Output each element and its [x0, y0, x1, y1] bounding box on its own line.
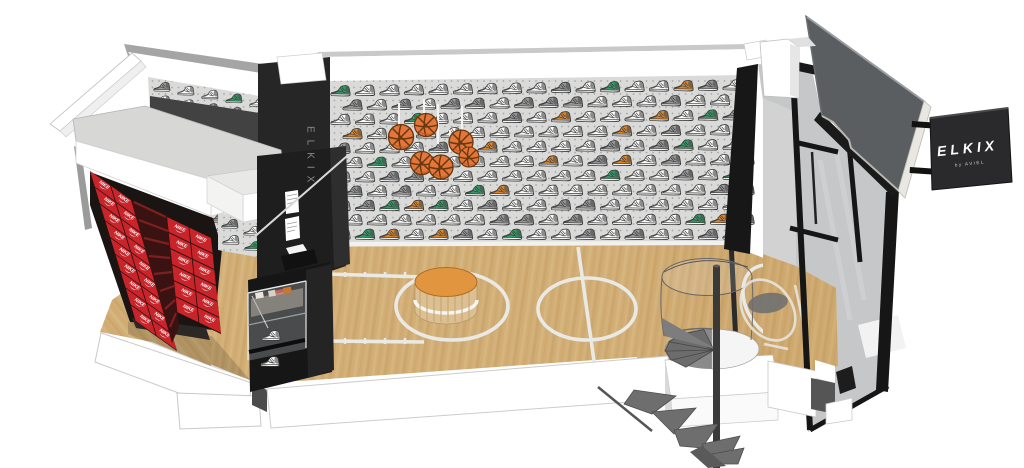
- svg-text:ELKIX: ELKIX: [305, 126, 316, 189]
